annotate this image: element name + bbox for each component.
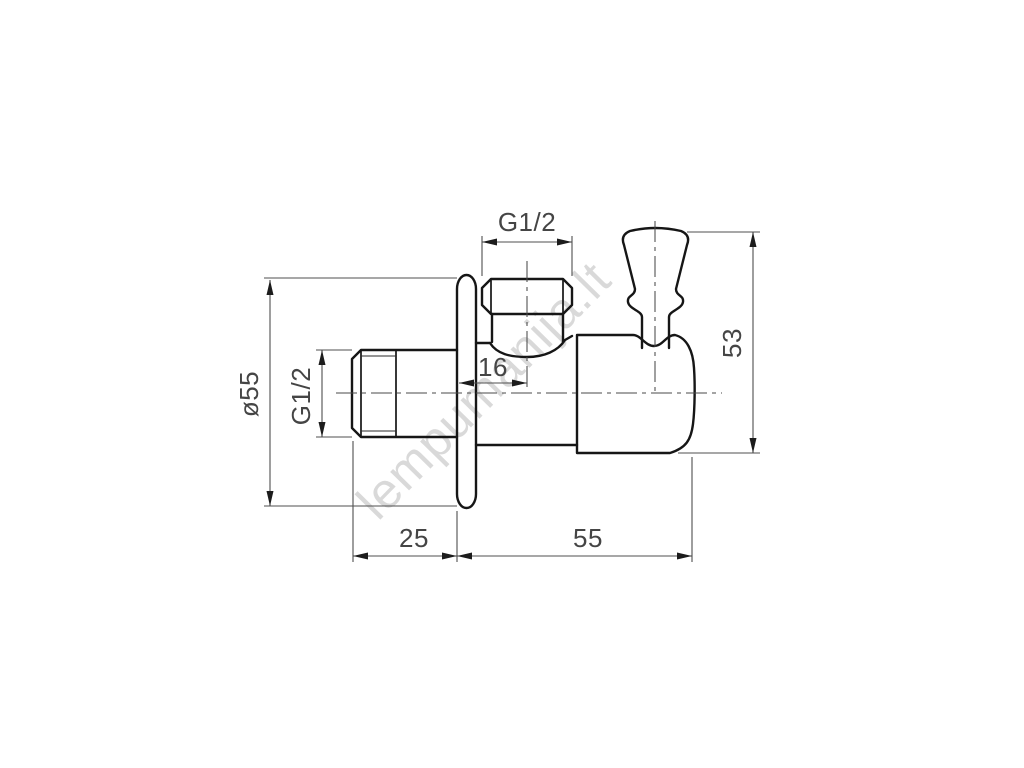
dim-label-flange-diameter: ø55: [234, 371, 264, 417]
valve-body-outline: [577, 335, 695, 453]
dim-label-body-length: 55: [573, 523, 603, 553]
watermark-text: lempumanija.lt: [346, 251, 622, 530]
dim-label-overall-height: 53: [717, 328, 747, 358]
dim-label-inlet-length: 25: [399, 523, 429, 553]
valve-technical-drawing: lempumanija.lt: [0, 0, 1024, 768]
dim-label-top-thread: G1/2: [498, 207, 556, 237]
drawing-canvas: lempumanija.lt: [0, 0, 1024, 768]
dimension-overall-height: 53: [678, 232, 760, 453]
dim-label-port-offset: 16: [478, 352, 508, 382]
dim-label-inlet-thread: G1/2: [286, 367, 316, 425]
